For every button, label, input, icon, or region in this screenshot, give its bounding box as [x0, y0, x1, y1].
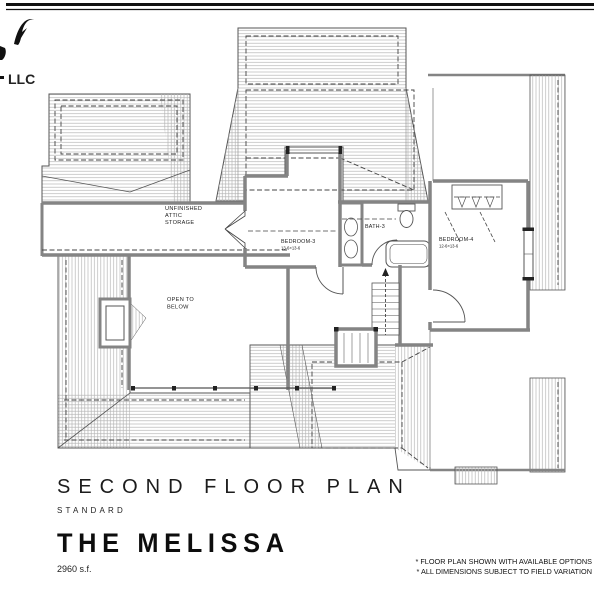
plan-name: THE MELISSA — [57, 528, 390, 559]
double-door — [225, 211, 245, 248]
sheet-border — [6, 5, 594, 10]
stair-direction-arrow — [382, 268, 389, 276]
plan-area: 2960 s.f. — [57, 564, 411, 574]
bath3-label: BATH-3 — [365, 224, 385, 230]
dormer-window — [286, 146, 342, 154]
disclaimer-line-2: * ALL DIMENSIONS SUBJECT TO FIELD VARIAT… — [415, 567, 592, 577]
window-bay — [100, 299, 146, 347]
bedroom4-label: BEDROOM-4 — [439, 237, 473, 243]
logo-glyph-fragment — [14, 19, 34, 45]
room-attic-storage: UNFINISHED ATTIC STORAGE — [42, 203, 245, 226]
roof-bottom-right-strip — [430, 330, 565, 484]
builder-logo: LLC — [0, 19, 35, 87]
bedroom3-label: BEDROOM-3 — [281, 239, 315, 245]
title-block: SECOND FLOOR PLAN STANDARD THE MELISSA 2… — [57, 476, 411, 574]
open-below-label-line2: BELOW — [167, 305, 189, 311]
roof-left-wing — [42, 203, 250, 448]
sheet-subtitle: STANDARD — [57, 506, 411, 515]
floor-plan-sheet: LLC — [0, 0, 600, 600]
staircase — [372, 268, 399, 335]
attic-label-line3: STORAGE — [165, 220, 194, 226]
window — [523, 228, 535, 281]
room-bedroom-4: BEDROOM-4 12-6×13-6 — [430, 181, 534, 330]
door-arc — [433, 290, 465, 322]
toilet — [398, 204, 415, 228]
closet-bedroom-3 — [340, 203, 362, 265]
open-below-label-line1: OPEN TO — [167, 297, 194, 303]
bedroom4-dims: 12-6×13-6 — [439, 244, 459, 249]
logo-glyph-fragment-2 — [0, 46, 6, 60]
attic-label-line2: ATTIC — [165, 213, 182, 219]
disclaimer-line-1: * FLOOR PLAN SHOWN WITH AVAILABLE OPTION… — [415, 557, 592, 567]
hall-bay-window — [334, 327, 378, 366]
attic-label-line1: UNFINISHED — [165, 206, 202, 212]
bedroom3-dims: 13-6×13-6 — [281, 246, 301, 251]
logo-llc-text: LLC — [8, 71, 35, 87]
bathtub — [386, 241, 430, 267]
door-arc — [316, 267, 343, 294]
roof-top-left — [42, 94, 190, 203]
disclaimer-notes: * FLOOR PLAN SHOWN WITH AVAILABLE OPTION… — [415, 557, 592, 576]
sheet-title: SECOND FLOOR PLAN — [57, 476, 411, 499]
closet — [452, 185, 502, 209]
